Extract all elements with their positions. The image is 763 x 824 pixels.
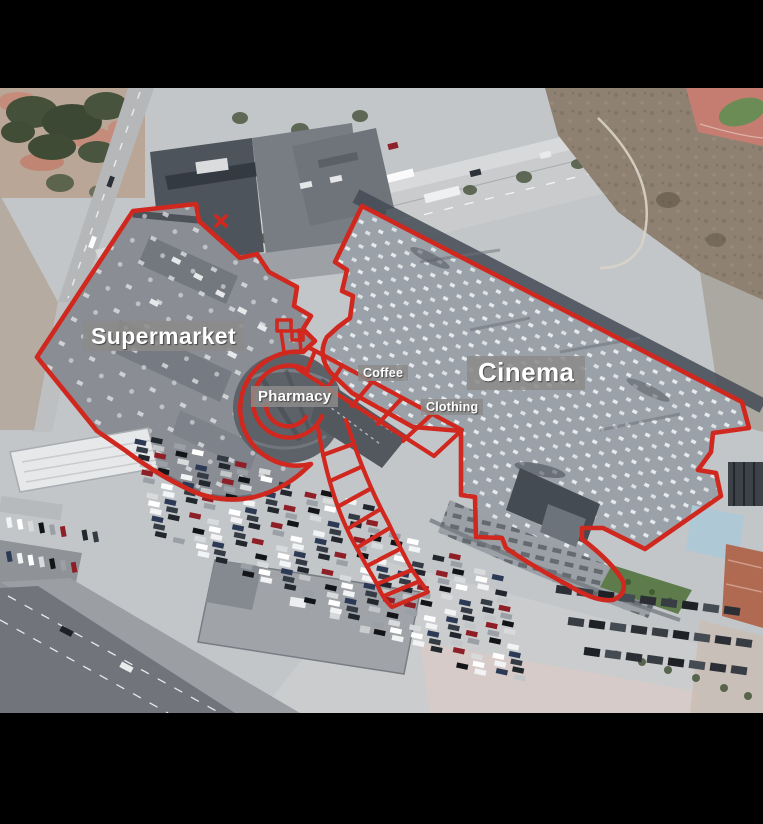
satellite-photo (0, 0, 763, 824)
area-label-coffee: Coffee (358, 365, 408, 381)
area-label-supermarket: Supermarket (83, 321, 244, 351)
area-label-cinema: Cinema (467, 356, 585, 390)
area-label-pharmacy: Pharmacy (251, 386, 338, 407)
area-label-clothing: Clothing (421, 399, 483, 415)
annotated-satellite-screenshot: Supermarket Cinema Pharmacy Coffee Cloth… (0, 0, 763, 824)
